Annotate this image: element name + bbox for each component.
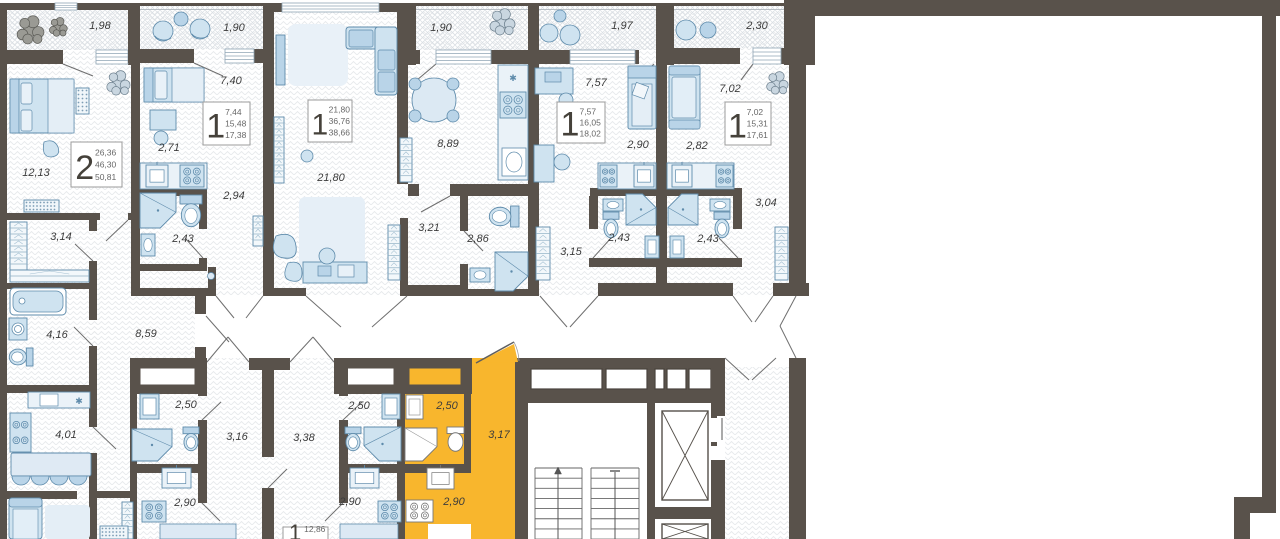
svg-text:1,97: 1,97 <box>611 20 633 32</box>
svg-text:2,43: 2,43 <box>171 233 194 245</box>
svg-text:3,16: 3,16 <box>226 431 248 443</box>
svg-text:3,21: 3,21 <box>418 222 439 234</box>
svg-text:8,89: 8,89 <box>437 138 458 150</box>
svg-text:15,48: 15,48 <box>225 119 247 129</box>
svg-text:17,61: 17,61 <box>747 130 769 140</box>
svg-text:1: 1 <box>289 520 301 539</box>
svg-text:50,81: 50,81 <box>95 172 117 182</box>
svg-text:7,02: 7,02 <box>719 83 740 95</box>
svg-text:2,43: 2,43 <box>696 233 719 245</box>
svg-text:3,38: 3,38 <box>293 432 315 444</box>
svg-text:1,90: 1,90 <box>223 22 245 34</box>
svg-text:1,90: 1,90 <box>430 22 452 34</box>
svg-text:1,98: 1,98 <box>89 20 111 32</box>
svg-text:3,14: 3,14 <box>50 231 71 243</box>
svg-text:2,94: 2,94 <box>222 190 244 202</box>
svg-text:2,86: 2,86 <box>466 233 489 245</box>
svg-text:16,05: 16,05 <box>580 117 602 127</box>
svg-text:7,40: 7,40 <box>220 75 242 87</box>
svg-text:2,90: 2,90 <box>173 497 196 509</box>
svg-text:2,90: 2,90 <box>338 496 361 508</box>
svg-text:7,57: 7,57 <box>580 106 597 116</box>
svg-text:12,13: 12,13 <box>22 167 50 179</box>
svg-text:15,31: 15,31 <box>747 119 769 129</box>
svg-text:2,50: 2,50 <box>435 400 458 412</box>
svg-text:1: 1 <box>728 107 747 145</box>
svg-text:2,82: 2,82 <box>685 140 707 152</box>
svg-text:1: 1 <box>560 106 579 144</box>
svg-text:12,86: 12,86 <box>304 524 326 534</box>
svg-text:38,66: 38,66 <box>329 127 351 137</box>
svg-text:3,15: 3,15 <box>560 246 582 258</box>
svg-text:3,04: 3,04 <box>755 197 776 209</box>
svg-text:2: 2 <box>75 149 94 187</box>
svg-text:2,43: 2,43 <box>607 232 630 244</box>
svg-text:7,44: 7,44 <box>225 107 242 117</box>
svg-text:7,02: 7,02 <box>747 107 764 117</box>
svg-text:✱: ✱ <box>75 396 83 406</box>
svg-text:18,02: 18,02 <box>580 128 602 138</box>
svg-text:2,50: 2,50 <box>174 399 197 411</box>
svg-text:8,59: 8,59 <box>135 328 156 340</box>
svg-text:1: 1 <box>206 107 225 145</box>
svg-text:17,38: 17,38 <box>225 130 247 140</box>
svg-text:1: 1 <box>312 108 329 141</box>
svg-text:2,50: 2,50 <box>347 400 370 412</box>
svg-text:2,71: 2,71 <box>157 142 179 154</box>
svg-text:36,76: 36,76 <box>329 116 351 126</box>
svg-text:3,17: 3,17 <box>488 429 510 441</box>
svg-text:26,36: 26,36 <box>95 148 117 158</box>
svg-text:7,57: 7,57 <box>585 77 607 89</box>
svg-text:21,80: 21,80 <box>329 105 351 115</box>
svg-text:21,80: 21,80 <box>316 172 345 184</box>
svg-text:46,30: 46,30 <box>95 160 117 170</box>
svg-text:✱: ✱ <box>509 73 517 83</box>
svg-text:2,30: 2,30 <box>745 20 768 32</box>
svg-text:4,16: 4,16 <box>46 329 68 341</box>
svg-text:2,90: 2,90 <box>442 496 465 508</box>
svg-text:2,90: 2,90 <box>626 139 649 151</box>
svg-text:4,01: 4,01 <box>55 429 76 441</box>
